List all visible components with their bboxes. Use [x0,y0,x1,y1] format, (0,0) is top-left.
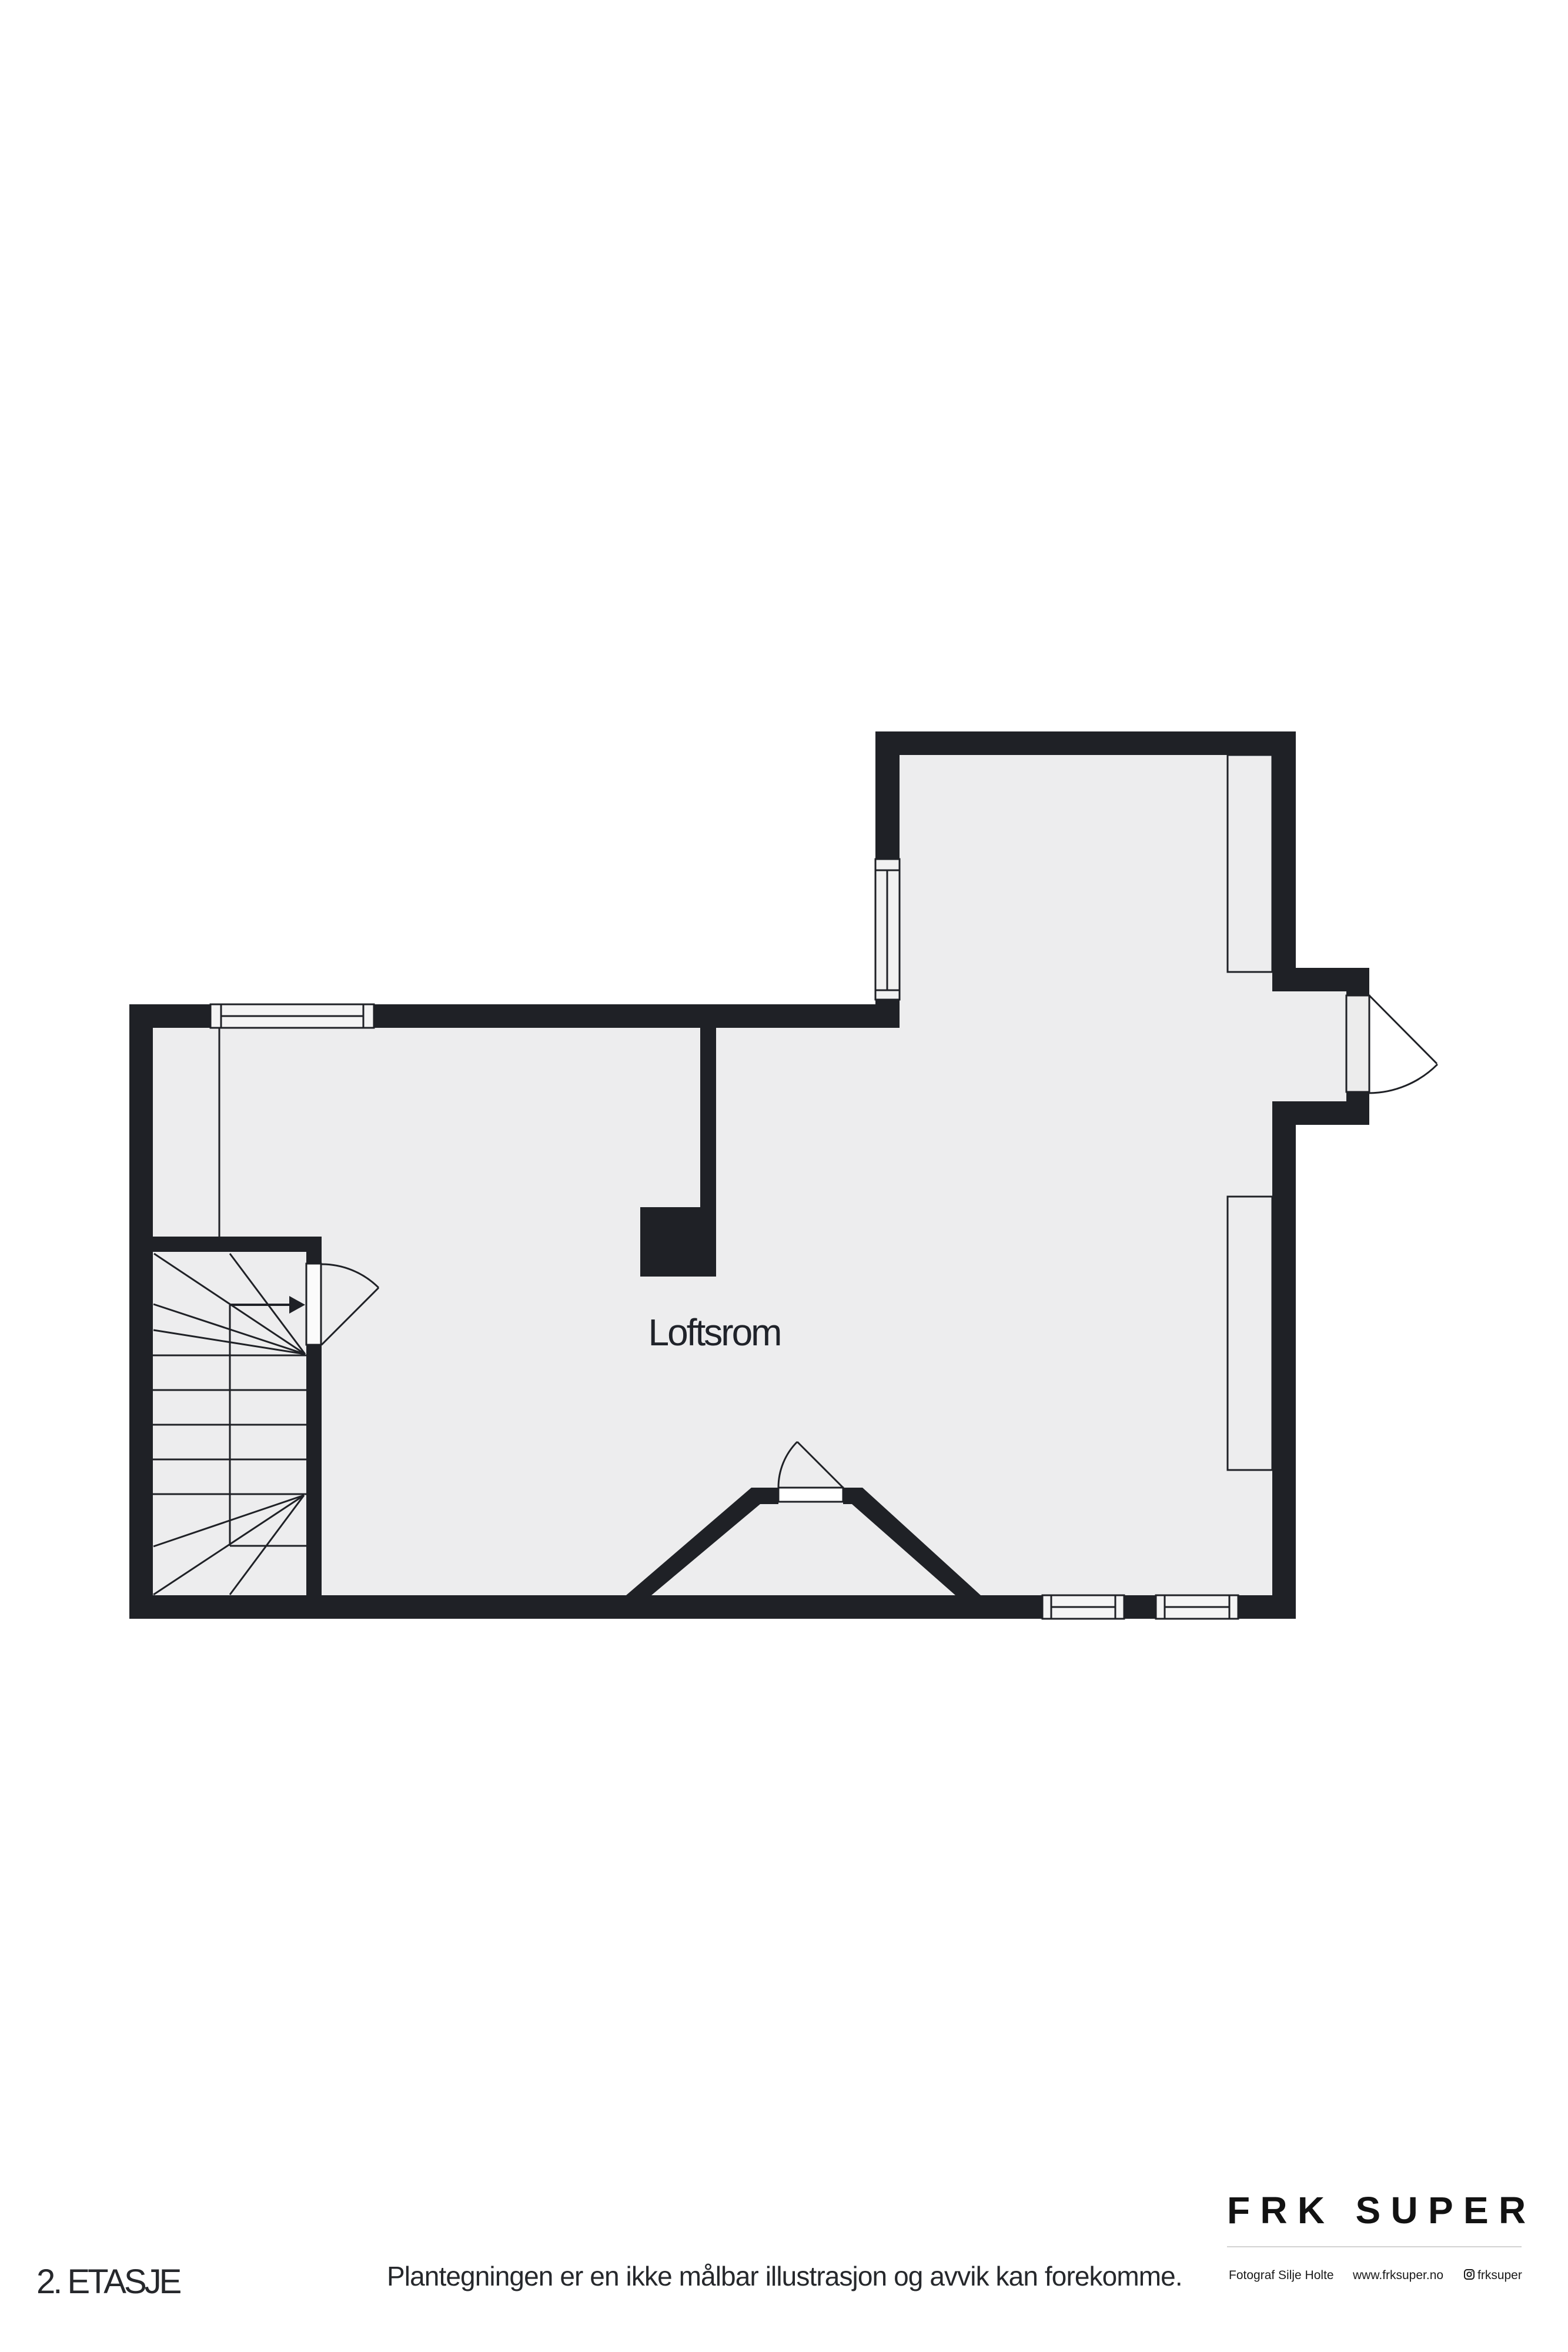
svg-text:Fotograf Silje Holte: Fotograf Silje Holte [1229,2269,1334,2282]
svg-text:2. ETASJE: 2. ETASJE [36,2263,181,2301]
svg-text:Loftsrom: Loftsrom [648,1311,781,1354]
svg-text:frksuper: frksuper [1477,2269,1522,2282]
svg-text:www.frksuper.no: www.frksuper.no [1352,2269,1443,2282]
svg-text:Plantegningen er en ikke målba: Plantegningen er en ikke målbar illustra… [387,2261,1182,2291]
svg-text:FRK SUPER: FRK SUPER [1227,2189,1536,2231]
